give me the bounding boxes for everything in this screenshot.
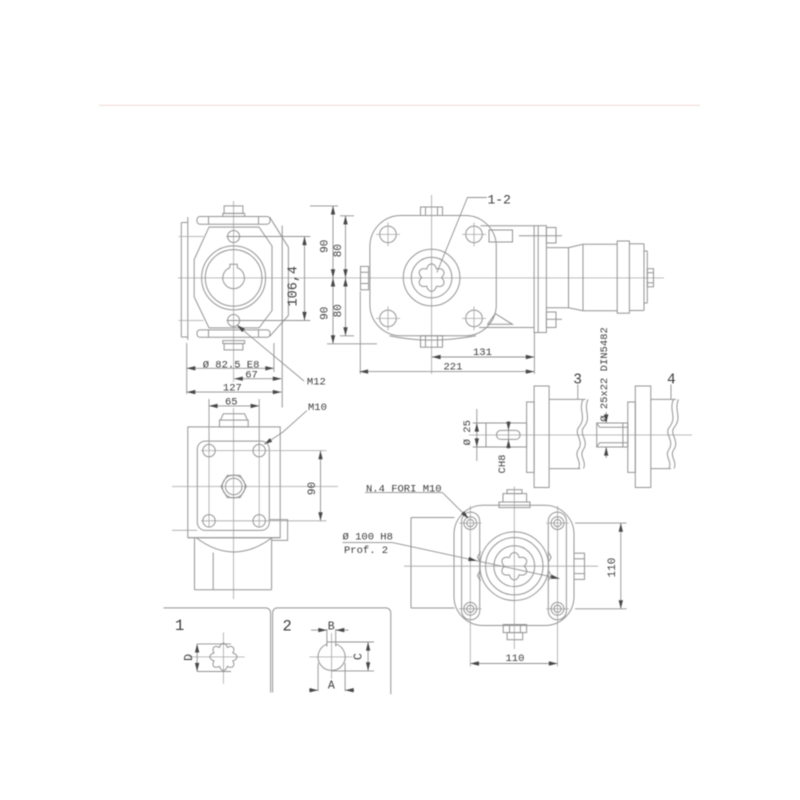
svg-text:Ø 100 H8: Ø 100 H8 bbox=[343, 532, 393, 544]
svg-text:M12: M12 bbox=[307, 376, 326, 388]
svg-text:131: 131 bbox=[473, 347, 492, 359]
svg-text:D: D bbox=[183, 654, 196, 661]
svg-text:2: 2 bbox=[283, 617, 292, 635]
svg-text:CH8: CH8 bbox=[497, 455, 509, 474]
svg-text:221: 221 bbox=[444, 361, 463, 373]
svg-text:N.4 FORI M10: N.4 FORI M10 bbox=[366, 483, 442, 495]
svg-text:90: 90 bbox=[319, 307, 331, 320]
svg-text:106,4: 106,4 bbox=[286, 266, 301, 307]
svg-text:A: A bbox=[328, 680, 335, 693]
svg-text:B: B bbox=[328, 620, 335, 633]
svg-text:110: 110 bbox=[607, 558, 619, 578]
svg-text:1-2: 1-2 bbox=[488, 192, 511, 207]
svg-text:127: 127 bbox=[223, 383, 242, 395]
svg-text:90: 90 bbox=[307, 482, 319, 495]
svg-text:3: 3 bbox=[573, 373, 582, 389]
svg-text:80: 80 bbox=[333, 244, 345, 257]
svg-text:4: 4 bbox=[667, 373, 676, 389]
svg-text:M10: M10 bbox=[308, 402, 327, 414]
svg-text:C: C bbox=[353, 653, 366, 660]
svg-text:110: 110 bbox=[506, 653, 525, 665]
svg-text:Ø 25x22 DIN5482: Ø 25x22 DIN5482 bbox=[599, 327, 611, 422]
svg-text:Prof. 2: Prof. 2 bbox=[344, 545, 388, 557]
svg-text:90: 90 bbox=[319, 240, 331, 253]
svg-text:65: 65 bbox=[225, 397, 238, 409]
svg-text:1: 1 bbox=[175, 617, 184, 635]
svg-text:80: 80 bbox=[333, 304, 345, 317]
svg-text:Ø 25: Ø 25 bbox=[462, 420, 474, 445]
svg-text:67: 67 bbox=[245, 370, 258, 382]
